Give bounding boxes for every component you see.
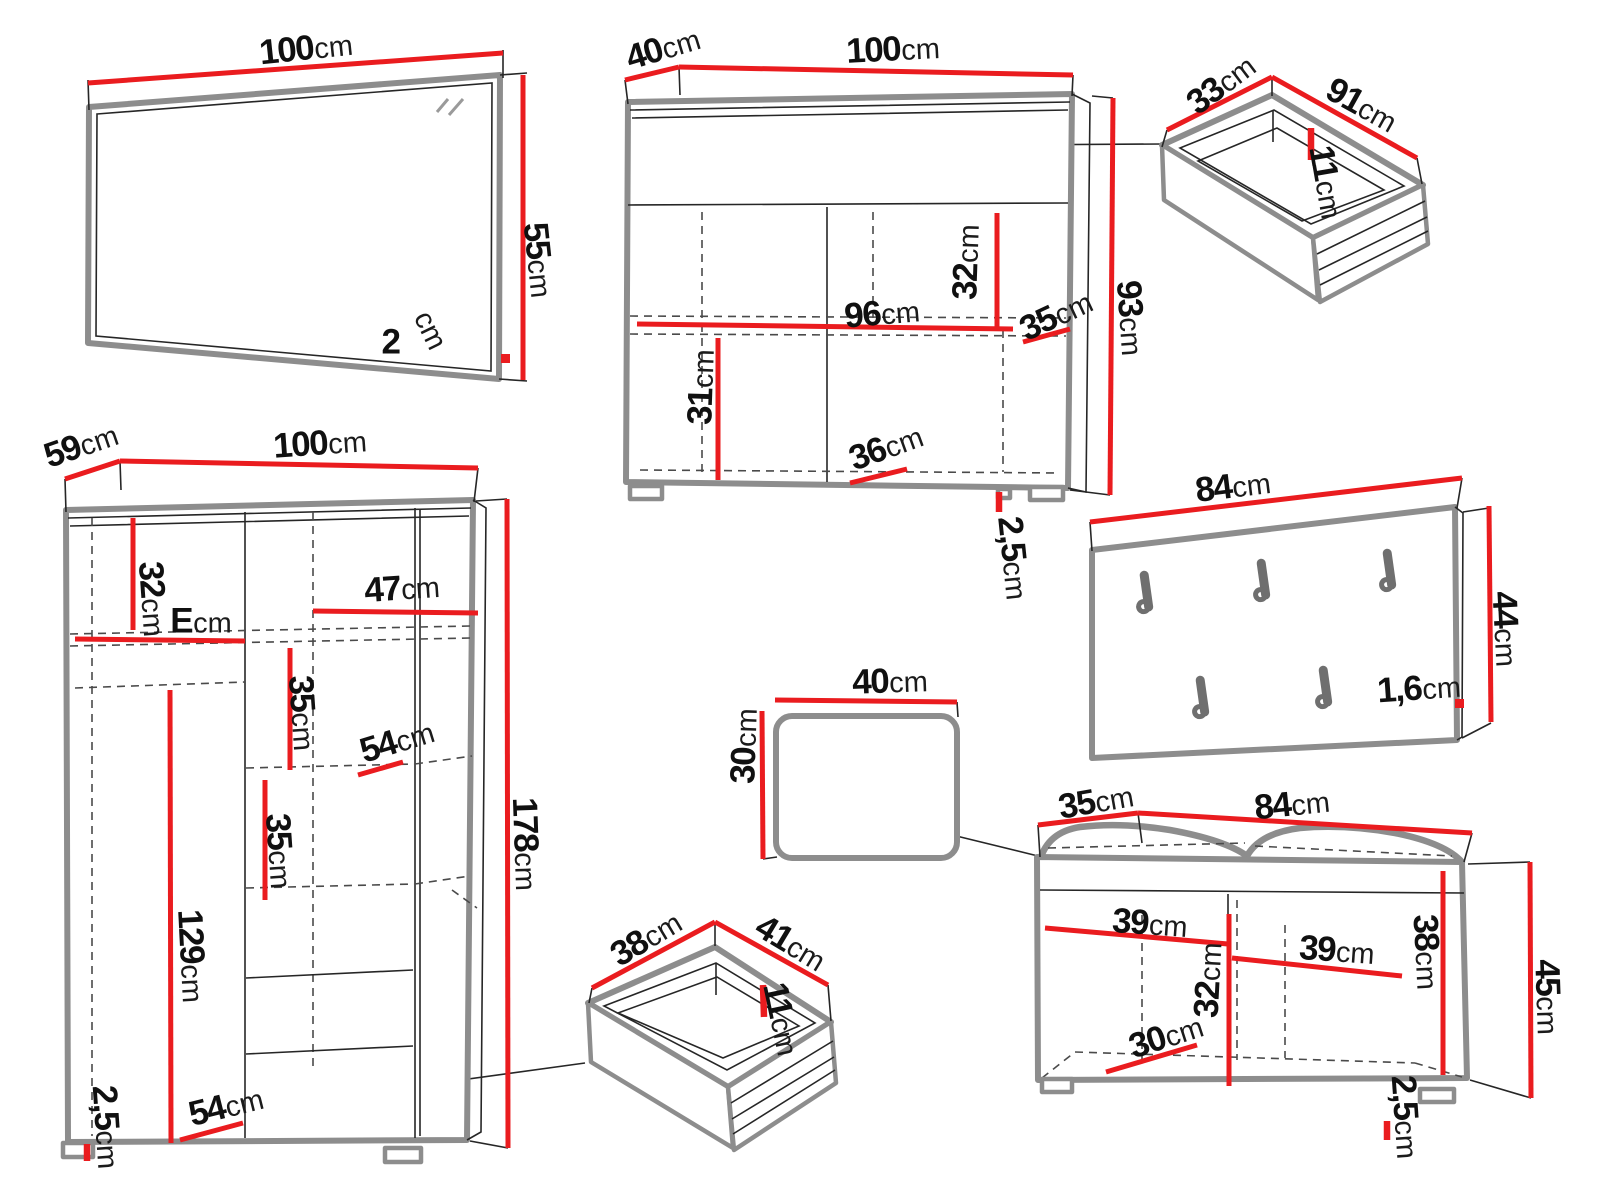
wardrobe-dimension-label: 178cm (507, 797, 545, 892)
shoe-bench-dimension-label: 38cm (1408, 913, 1447, 990)
sideboard-dimension-label: 2,5cm (992, 514, 1036, 601)
seat-cushion-dimension-label: 30cm (725, 708, 763, 785)
shoe-bench-dimension-label: 45cm (1529, 959, 1567, 1036)
coat-rack-dimension-label: 84cm (1193, 464, 1272, 508)
large-drawer-dimension-label: 91cm (1320, 71, 1403, 138)
sideboard-dimension-label: 96cm (843, 292, 921, 333)
shoe-bench-dimension-label: 39cm (1298, 930, 1376, 970)
coat-rack-dimension-label: 1,6cm (1376, 668, 1462, 709)
sideboard-dimension-label: 93cm (1111, 279, 1151, 357)
dimension-labels-layer: 100cm55cm2cm40cm100cm32cm96cm35cm93cm31c… (0, 0, 1600, 1200)
mirror-dimension-label: 55cm (518, 221, 561, 300)
wardrobe-dimension-label: 47cm (363, 568, 441, 608)
mirror-dimension-label: 100cm (258, 26, 355, 71)
sideboard-dimension-label: 32cm (947, 224, 985, 301)
mirror-dimension-label: 2 (382, 325, 401, 360)
shoe-bench-dimension-label: 39cm (1111, 903, 1189, 943)
wardrobe-dimension-label: 59cm (40, 416, 123, 474)
shoe-bench-dimension-label: 84cm (1253, 783, 1332, 826)
wardrobe-dimension-label: 129cm (172, 908, 212, 1003)
small-drawer-dimension-label: 38cm (605, 904, 688, 973)
small-drawer-dimension-label: 41cm (750, 909, 833, 978)
sideboard-dimension-label: 35cm (1014, 283, 1097, 347)
sideboard-dimension-label: 36cm (844, 418, 927, 477)
sideboard-dimension-label: 40cm (622, 20, 705, 76)
sideboard-dimension-label: 31cm (682, 349, 720, 426)
mirror-dimension-label: cm (408, 304, 457, 355)
wardrobe-dimension-label: Ecm (170, 604, 232, 639)
wardrobe-dimension-label: 54cm (356, 713, 439, 769)
wardrobe-dimension-label: 35cm (260, 812, 300, 890)
wardrobe-dimension-label: 32cm (133, 560, 173, 638)
wardrobe-dimension-label: 54cm (185, 1080, 267, 1132)
furniture-dimensions-diagram: 100cm55cm2cm40cm100cm32cm96cm35cm93cm31c… (0, 0, 1600, 1200)
small-drawer-dimension-label: 11cm (757, 979, 807, 1058)
large-drawer-dimension-label: 11cm (1303, 143, 1350, 222)
shoe-bench-dimension-label: 35cm (1056, 777, 1137, 825)
sideboard-dimension-label: 100cm (845, 29, 940, 69)
coat-rack-dimension-label: 44cm (1487, 590, 1526, 667)
large-drawer-dimension-label: 33cm (1180, 47, 1261, 120)
wardrobe-dimension-label: 2,5cm (87, 1084, 128, 1170)
wardrobe-dimension-label: 35cm (283, 674, 323, 752)
shoe-bench-dimension-label: 2,5cm (1386, 1074, 1427, 1160)
seat-cushion-dimension-label: 40cm (852, 662, 929, 700)
shoe-bench-dimension-label: 30cm (1125, 1008, 1208, 1065)
wardrobe-dimension-label: 100cm (272, 422, 368, 463)
